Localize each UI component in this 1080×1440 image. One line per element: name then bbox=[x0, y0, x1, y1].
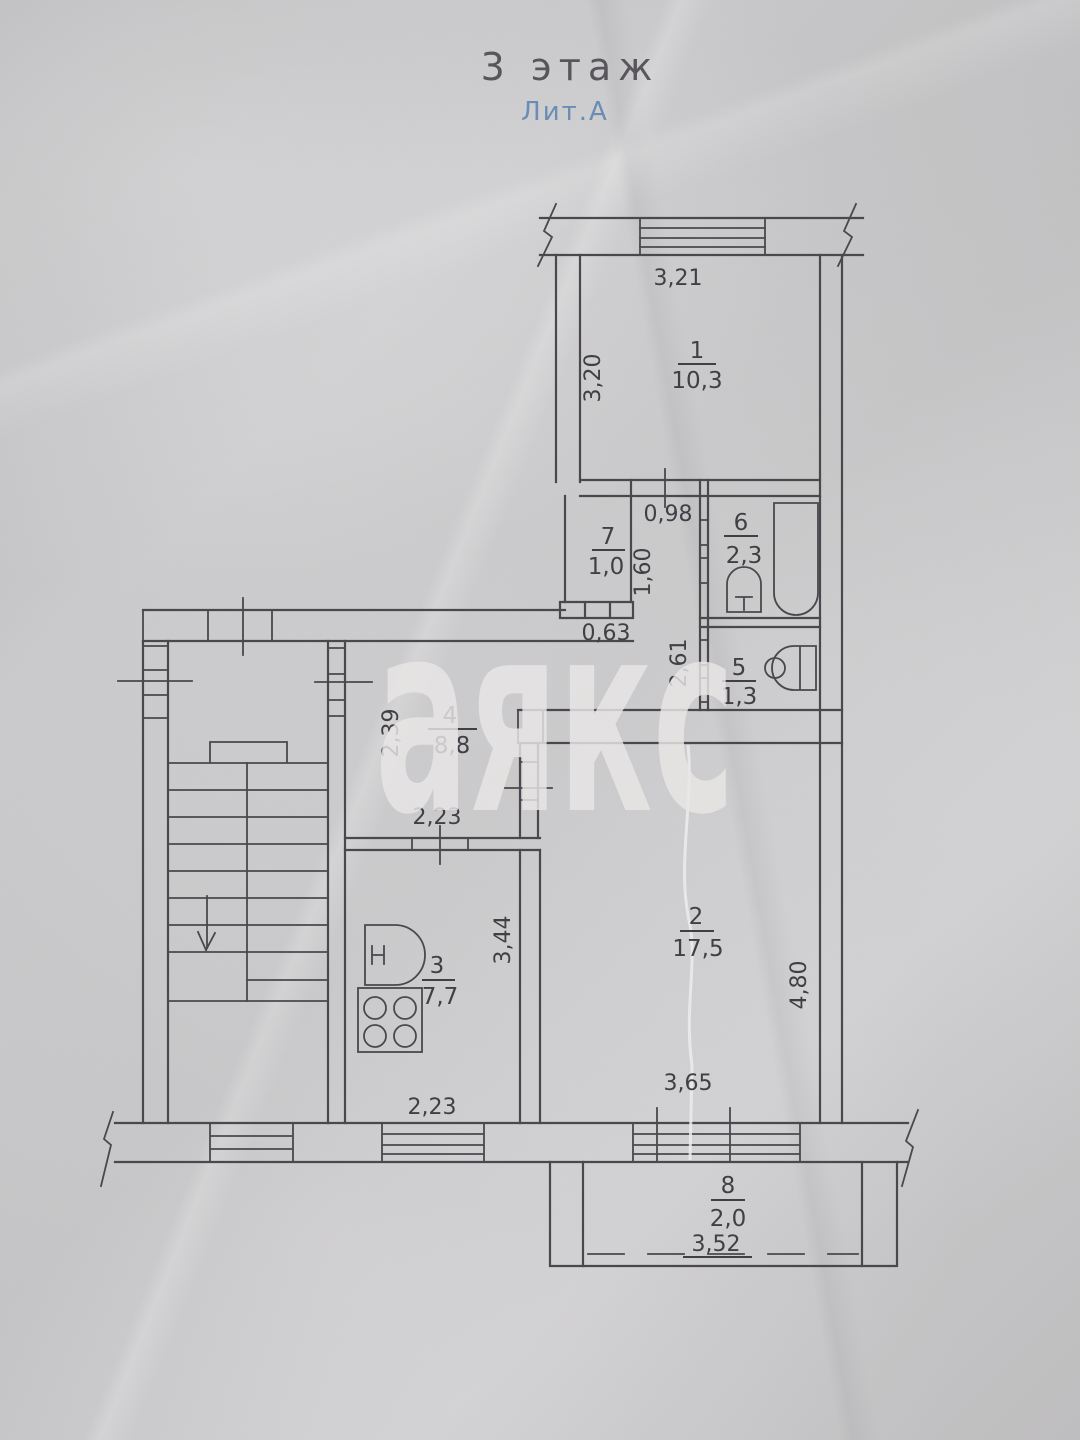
staircase bbox=[168, 742, 328, 1001]
room-3-area: 7,7 bbox=[422, 984, 459, 1010]
dim-balcony-bottom: 3,52 bbox=[692, 1232, 741, 1257]
room-1-number: 1 bbox=[690, 338, 705, 364]
room-8-area: 2,0 bbox=[710, 1206, 747, 1232]
floor-plan: 3 этаж Лит.А bbox=[0, 0, 1080, 1440]
room-2-number: 2 bbox=[689, 904, 704, 930]
kitchen-sink-icon bbox=[365, 925, 425, 985]
agency-watermark: аякс bbox=[375, 565, 735, 873]
room-7-number: 7 bbox=[601, 524, 616, 550]
stairs-down-arrow bbox=[198, 896, 215, 950]
dim-room2-bottom: 3,65 bbox=[664, 1071, 713, 1096]
room-2-area: 17,5 bbox=[672, 936, 723, 962]
dim-kitchen-bottom: 2,23 bbox=[408, 1095, 457, 1120]
dim-corridor-width: 0,98 bbox=[644, 502, 693, 527]
room-3-number: 3 bbox=[430, 953, 445, 979]
dim-room1-left: 3,20 bbox=[581, 354, 606, 403]
litera-label: Лит.А bbox=[521, 97, 609, 127]
stove-icon bbox=[358, 988, 422, 1052]
bathtub-icon bbox=[774, 503, 818, 615]
dim-kitchen-right: 3,44 bbox=[491, 916, 516, 965]
room-6-number: 6 bbox=[734, 510, 749, 536]
page-title: 3 этаж bbox=[481, 45, 660, 89]
room-8-number: 8 bbox=[721, 1173, 736, 1199]
room-1-area: 10,3 bbox=[671, 368, 722, 394]
dim-room2-right: 4,80 bbox=[787, 961, 812, 1010]
dim-balcony-top: 3,21 bbox=[654, 266, 703, 291]
toilet-icon bbox=[765, 646, 816, 690]
